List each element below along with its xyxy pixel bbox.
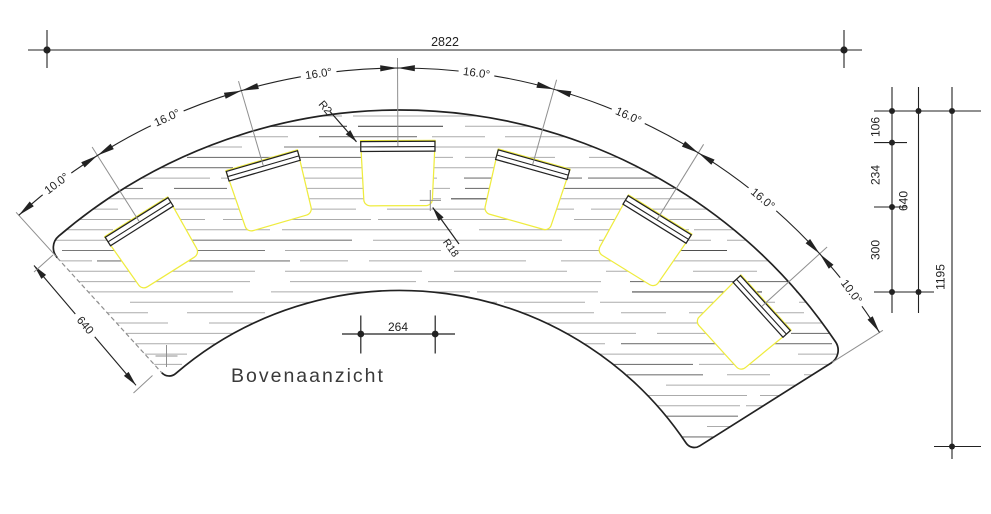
svg-text:264: 264 bbox=[388, 320, 408, 334]
svg-text:2822: 2822 bbox=[431, 35, 459, 49]
svg-text:234: 234 bbox=[869, 165, 883, 185]
svg-text:106: 106 bbox=[869, 117, 883, 137]
svg-text:640: 640 bbox=[897, 191, 911, 211]
svg-text:1195: 1195 bbox=[934, 264, 948, 290]
svg-text:300: 300 bbox=[869, 240, 883, 260]
svg-text:Bovenaanzicht: Bovenaanzicht bbox=[231, 365, 385, 387]
